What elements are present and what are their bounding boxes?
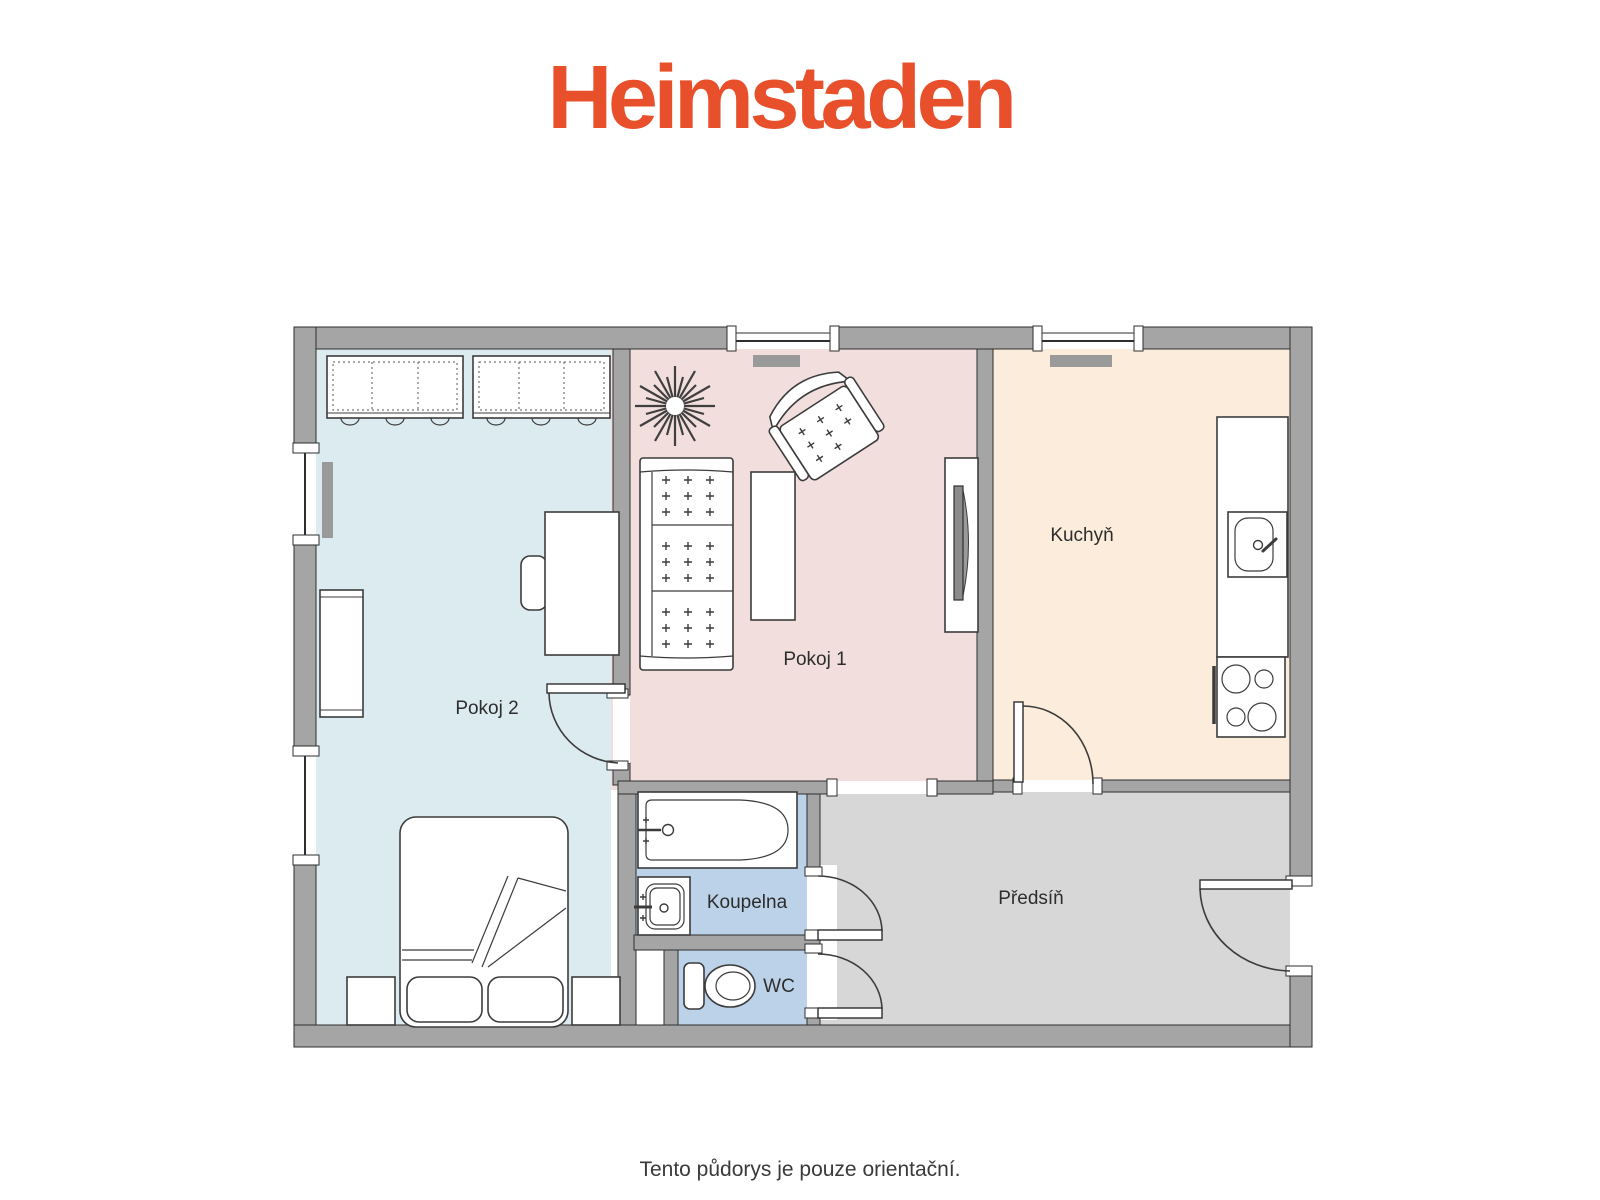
door-frame (805, 867, 822, 876)
door-frame (1093, 778, 1102, 794)
wall-bottom (294, 1025, 1312, 1047)
cabinet-body (320, 590, 363, 717)
radiator-pokoj1 (753, 355, 800, 367)
wall-kuchyn-bottom-2 (1093, 780, 1290, 792)
toilet-bowl (705, 965, 755, 1007)
window-frame (293, 746, 319, 756)
door-frame (927, 779, 937, 796)
door-opening (613, 697, 630, 763)
bathroom-sink (634, 877, 690, 935)
window-frame (293, 443, 319, 453)
wall-left-2 (294, 540, 316, 750)
wall-shaft-stub (664, 950, 678, 1025)
toilet-tank (684, 963, 704, 1009)
label-kuchyn: Kuchyň (1050, 525, 1113, 546)
label-pokoj2: Pokoj 2 (455, 698, 518, 719)
wardrobe-body (473, 356, 610, 418)
bathtub (638, 792, 797, 868)
tv-unit (945, 458, 978, 632)
bathtub-drain (663, 825, 674, 836)
door-opening (1022, 780, 1093, 792)
floor-plan-canvas: Heimstaden (0, 0, 1600, 1200)
kitchen-faucet (1254, 541, 1263, 550)
sofa-body (640, 458, 733, 670)
window-frame (1033, 326, 1042, 351)
label-koupelna: Koupelna (707, 892, 788, 913)
door-opening (807, 953, 820, 1010)
plant-pot (666, 397, 684, 415)
window-kuchyn (1033, 326, 1143, 351)
floor-plan-page: Heimstaden (0, 0, 1600, 1200)
toilet (684, 963, 755, 1009)
desk (545, 512, 619, 655)
passage-opening (837, 781, 927, 794)
door-leaf (1014, 702, 1023, 782)
wall-left-3 (294, 860, 316, 1047)
window-frame (293, 855, 319, 865)
tv-screen (954, 486, 963, 600)
door-frame (805, 944, 822, 953)
nightstand (347, 977, 395, 1025)
passage-pokoj1-predsin (827, 779, 937, 796)
wall-top-2 (833, 327, 1038, 349)
cabinet (320, 590, 363, 717)
radiator-pokoj2 (322, 462, 333, 538)
sink-drain (660, 904, 668, 912)
wall-top-1 (294, 327, 732, 349)
bed-pillow (407, 977, 482, 1022)
label-wc: WC (763, 976, 795, 997)
wardrobe (327, 356, 463, 425)
window-frame (1134, 326, 1143, 351)
window-frame (293, 535, 319, 545)
wall-pokoj1-kuchyn (977, 349, 993, 781)
heimstaden-logo: Heimstaden (547, 48, 1012, 148)
label-predsin: Předsíň (998, 888, 1063, 909)
door-frame (827, 779, 837, 796)
window-opening (732, 327, 833, 349)
window-opening (1038, 327, 1136, 349)
door-opening (1290, 885, 1312, 973)
label-pokoj1: Pokoj 1 (783, 649, 846, 670)
footer-note: Tento půdorys je pouze orientační. (639, 1158, 960, 1181)
coffee-table (751, 472, 795, 620)
wardrobe (473, 356, 610, 425)
door-leaf (818, 1008, 882, 1018)
bed-pillow (488, 977, 563, 1022)
door-opening (807, 875, 820, 932)
wall-koupelna-predsin-1 (807, 794, 820, 875)
radiator-kuchyn (1050, 355, 1112, 367)
window-pokoj1 (727, 326, 839, 351)
furniture-kuchyn (1214, 417, 1288, 737)
window-pokoj2-lower (293, 746, 319, 865)
window-frame (830, 326, 839, 351)
door-leaf (1200, 880, 1292, 889)
sofa (640, 458, 733, 670)
wardrobe-body (327, 356, 463, 418)
stove (1214, 657, 1285, 737)
bed (400, 817, 568, 1027)
wall-top-3 (1136, 327, 1312, 349)
wall-pokoj1-bottom (937, 781, 993, 794)
door-swing-strip (820, 865, 837, 1020)
wall-koupelna-wc-divider (634, 935, 820, 950)
kitchen-sink (1228, 512, 1287, 577)
door-leaf (818, 930, 882, 940)
door-leaf (547, 684, 625, 693)
wall-left-1 (294, 327, 316, 447)
utility-shaft (636, 950, 664, 1025)
window-frame (727, 326, 736, 351)
wall-right-2 (1290, 973, 1312, 1047)
wall-right-1 (1290, 327, 1312, 885)
nightstand (572, 977, 620, 1025)
desk-chair (521, 556, 547, 610)
window-pokoj2-upper (293, 443, 319, 545)
